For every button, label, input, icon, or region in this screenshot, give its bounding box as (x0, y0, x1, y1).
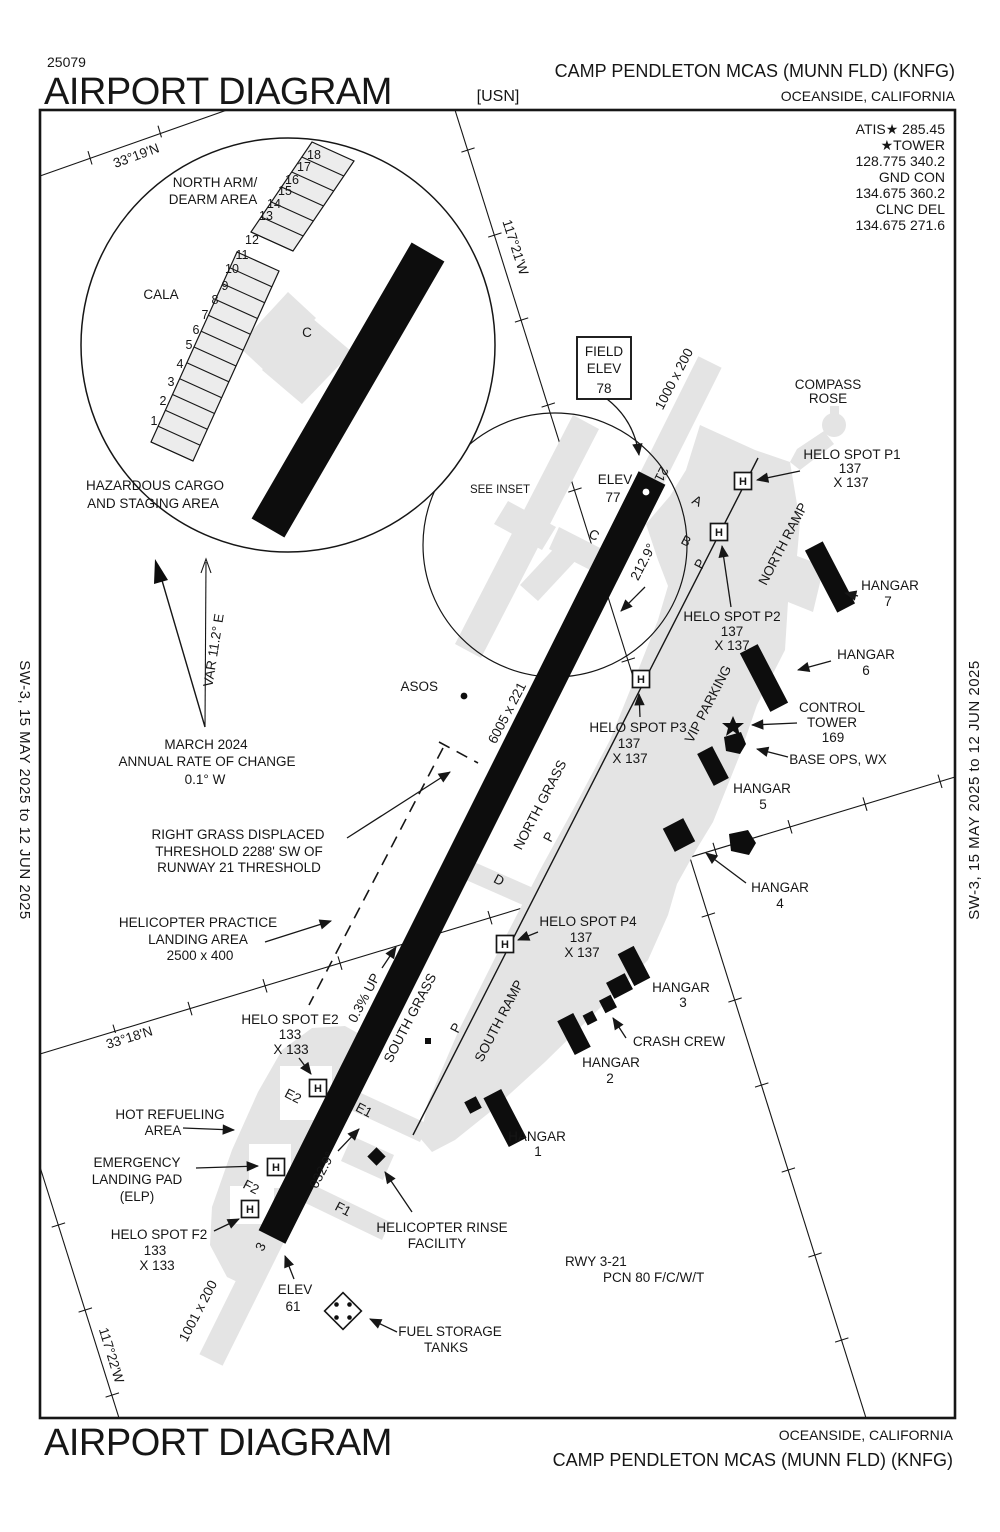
hot-refuel-leader (183, 1128, 234, 1130)
elp-label-3: (ELP) (120, 1189, 155, 1204)
helo-spot-p4-label: HELO SPOT P4 (539, 914, 637, 929)
svg-text:H: H (739, 476, 747, 488)
practice-area-note-3: 2500 x 400 (167, 948, 234, 963)
inset-spot-12: 12 (245, 233, 259, 247)
elev-77-label: ELEV (598, 472, 633, 487)
compass-rose-label-1: COMPASS (795, 377, 862, 392)
footer-airport-name: CAMP PENDLETON MCAS (MUNN FLD) (KNFG) (553, 1450, 953, 1470)
rinse-facility-label-1: HELICOPTER RINSE (376, 1220, 507, 1235)
inset-spot-14: 14 (267, 197, 281, 211)
displaced-note-1: RIGHT GRASS DISPLACED (151, 827, 324, 842)
helo-spot-e2-dim1: 133 (279, 1027, 302, 1042)
inset-spot-13: 13 (259, 209, 273, 223)
elev-61-label: ELEV (278, 1282, 313, 1297)
field-elev-line-2: ELEV (587, 361, 622, 376)
compass-rose-nub (830, 406, 839, 415)
compass-rose-label-2: ROSE (809, 391, 847, 406)
hot-refuel-label-1: HOT REFUELING (115, 1107, 224, 1122)
inset-cala-label: CALA (143, 287, 178, 302)
inset-spot-2: 2 (160, 394, 167, 408)
north-indicator: VAR 11.2° E MARCH 2024 ANNUAL RATE OF CH… (118, 559, 295, 787)
inset-spot-11: 11 (236, 248, 249, 262)
see-inset-label: SEE INSET (470, 484, 530, 496)
base-ops-leader (757, 749, 788, 757)
helo-spot-f2-dim2: X 133 (139, 1258, 174, 1273)
helo-spot-p2-dim1: 137 (721, 624, 744, 639)
hangar-6-number: 6 (862, 663, 870, 678)
rinse-facility-label-2: FACILITY (408, 1236, 467, 1251)
inset-spot-7: 7 (202, 308, 209, 322)
taxiway-c-label: C (586, 526, 602, 544)
comms-tower-freq: 128.775 340.2 (855, 153, 945, 169)
rinse-facility-leader (385, 1172, 412, 1212)
inset-spot-9: 9 (222, 279, 229, 293)
inset-spot-8: 8 (212, 293, 219, 307)
helo-spot-e2-dim2: X 133 (273, 1042, 308, 1057)
heading-212-arrow (621, 587, 645, 611)
helo-spot-p3-dim2: X 137 (612, 751, 647, 766)
field-elev-leader (607, 399, 639, 455)
helo-spot-f2-box: H (242, 1201, 259, 1218)
helo-spot-p1-dim1: 137 (839, 461, 862, 476)
displaced-note-3: RUNWAY 21 THRESHOLD (157, 860, 321, 875)
inset-hazardous-label-1: HAZARDOUS CARGO (86, 478, 224, 493)
control-tower-elev: 169 (822, 730, 845, 745)
hangar-7-label: HANGAR (861, 578, 919, 593)
svg-text:SW-3, 15 MAY 2025 to 12 JUN: SW-3, 15 MAY 2025 to 12 JUN 2025 (966, 660, 983, 919)
helo-spot-p4-box: H (497, 936, 514, 953)
inset-spot-3: 3 (168, 375, 175, 389)
hangar-3-number: 3 (679, 995, 687, 1010)
helo-spot-p2-box: H (711, 524, 728, 541)
inset-spot-4: 4 (177, 357, 184, 371)
true-north-line (205, 562, 206, 727)
inset-spot-16: 16 (285, 173, 299, 187)
inset-detail: NORTH ARM/ DEARM AREA CALA C HAZARDOUS C… (81, 138, 495, 552)
svg-text:H: H (272, 1162, 280, 1174)
airport-diagram-page: { "header": { "chart_number": "25079", "… (0, 0, 1000, 1532)
elp-label-1: EMERGENCY (93, 1155, 180, 1170)
hangar-4-number: 4 (776, 896, 784, 911)
asos-dot (461, 693, 468, 700)
crash-crew-leader (613, 1018, 626, 1038)
magnetic-north-arrowhead (154, 559, 168, 584)
hangar-6-label: HANGAR (837, 647, 895, 662)
footer: OCEANSIDE, CALIFORNIA AIRPORT DIAGRAM CA… (44, 1422, 954, 1470)
airport-city: OCEANSIDE, CALIFORNIA (781, 88, 956, 104)
rwy-info-line-1: RWY 3-21 (565, 1254, 627, 1269)
elev-61-leader (285, 1256, 294, 1279)
hangar-4-label: HANGAR (751, 880, 809, 895)
variation-date: MARCH 2024 (164, 737, 248, 752)
helo-spot-p4-dim1: 137 (570, 930, 593, 945)
building-east-of-hangar4 (729, 830, 756, 855)
inset-hazardous-label-2: AND STAGING AREA (87, 496, 219, 511)
inset-spot-1: 1 (151, 414, 158, 428)
hangar-4-leader (706, 853, 746, 883)
helo-spot-p3-dim1: 137 (618, 736, 641, 751)
helo-spot-p3-box: H (633, 671, 650, 688)
helo-spot-p4-dim2: X 137 (564, 945, 599, 960)
elev-61-value: 61 (285, 1299, 300, 1314)
elp-helo-box: H (268, 1159, 285, 1176)
fuel-storage-symbol (325, 1293, 362, 1330)
helo-spot-p2-dim2: X 137 (714, 638, 749, 653)
comms-gnd: GND CON (879, 169, 945, 185)
elev-77-value: 77 (605, 490, 620, 505)
svg-text:H: H (715, 527, 723, 539)
control-tower-label-2: TOWER (807, 715, 857, 730)
displaced-note-2: THRESHOLD 2288' SW OF (155, 844, 323, 859)
helo-spot-p3-label: HELO SPOT P3 (589, 720, 686, 735)
comms-atis: ATIS★ 285.45 (856, 121, 946, 137)
comms-tower: ★TOWER (881, 137, 945, 153)
hangar-1-label: HANGAR (508, 1129, 566, 1144)
fuel-storage-leader (370, 1319, 397, 1332)
inset-spot-17: 17 (297, 160, 311, 174)
hangar-5-number: 5 (759, 797, 767, 812)
control-tower-leader (752, 723, 797, 725)
helo-spot-f2-dim1: 133 (144, 1243, 167, 1258)
displaced-threshold-dash (439, 742, 478, 763)
right-margin-text: SW-3, 15 MAY 2025 to 12 JUN 2025 (966, 660, 983, 919)
chart-number: 25079 (47, 54, 86, 70)
svg-text:SW-3, 15 MAY 2025 to 12 JUN: SW-3, 15 MAY 2025 to 12 JUN 2025 (16, 660, 33, 919)
practice-area-note-2: LANDING AREA (148, 932, 248, 947)
comms-gnd-freq: 134.675 360.2 (855, 185, 945, 201)
hangar-6-leader (798, 661, 831, 670)
variation-rate-label: ANNUAL RATE OF CHANGE (118, 754, 295, 769)
hangar-5-label: HANGAR (733, 781, 791, 796)
hot-refuel-label-2: AREA (145, 1123, 182, 1138)
svg-text:33°18'N: 33°18'N (104, 1023, 154, 1051)
lat-label-3318: 33°18'N (94, 1020, 164, 1055)
compass-rose-pad (822, 413, 846, 437)
svg-text:33°19'N: 33°19'N (111, 140, 161, 170)
header: 25079 AIRPORT DIAGRAM [USN] CAMP PENDLET… (44, 54, 956, 113)
variation-label: VAR 11.2° E (200, 613, 226, 688)
page-title: AIRPORT DIAGRAM (44, 71, 392, 113)
helo-spot-e2-box: H (310, 1080, 327, 1097)
runway-21-threshold-dot (643, 489, 650, 496)
helo-spot-p1-dim2: X 137 (833, 475, 868, 490)
helo-spot-f2-label: HELO SPOT F2 (111, 1227, 208, 1242)
variation-rate-value: 0.1° W (185, 772, 226, 787)
comms-clnc-freq: 134.675 271.6 (855, 217, 945, 233)
elp-label-2: LANDING PAD (92, 1172, 183, 1187)
rwy-info-line-2: PCN 80 F/C/W/T (603, 1270, 704, 1285)
hangar-2-number: 2 (606, 1071, 614, 1086)
svg-text:H: H (501, 939, 509, 951)
helo-spot-p2-label: HELO SPOT P2 (683, 609, 780, 624)
comms-block: ATIS★ 285.45 ★TOWER 128.775 340.2 GND CO… (855, 121, 945, 233)
magnetic-north-line (161, 577, 205, 727)
svg-text:H: H (314, 1083, 322, 1095)
field-elev-value: 78 (596, 381, 611, 396)
inset-spot-10: 10 (225, 262, 239, 276)
inset-north-arm-label-2: DEARM AREA (169, 192, 258, 207)
inset-spot-6: 6 (193, 323, 200, 337)
hangar-2-label: HANGAR (582, 1055, 640, 1070)
inset-taxiway-c-label: C (302, 325, 312, 340)
hangar-1-number: 1 (534, 1144, 542, 1159)
helo-spot-p1-label: HELO SPOT P1 (803, 447, 900, 462)
svg-text:117°22'W: 117°22'W (96, 1326, 127, 1385)
inset-spot-18: 18 (307, 148, 321, 162)
control-tower-label-1: CONTROL (799, 700, 865, 715)
hangar-7-number: 7 (884, 594, 892, 609)
left-margin-text: SW-3, 15 MAY 2025 to 12 JUN 2025 (16, 660, 33, 919)
lon-label-11721: 117°21'W (497, 209, 535, 284)
org-label: [USN] (477, 88, 520, 105)
south-grass-marker (425, 1038, 431, 1044)
helo-spot-p1-box: H (735, 473, 752, 490)
practice-area-note-1: HELICOPTER PRACTICE (119, 915, 277, 930)
taxiway-p-label-mid: P (540, 829, 557, 844)
diagram-canvas: 25079 AIRPORT DIAGRAM [USN] CAMP PENDLET… (0, 0, 1000, 1532)
footer-city: OCEANSIDE, CALIFORNIA (779, 1427, 954, 1443)
asos-label: ASOS (400, 679, 438, 694)
svg-text:H: H (637, 674, 645, 686)
lon-line-11722 (40, 1167, 119, 1418)
hangar-3-label: HANGAR (652, 980, 710, 995)
inset-spot-5: 5 (186, 338, 193, 352)
helo-spot-e2-label: HELO SPOT E2 (241, 1012, 338, 1027)
crash-crew-label: CRASH CREW (633, 1034, 726, 1049)
base-ops-label: BASE OPS, WX (789, 752, 887, 767)
airport-name: CAMP PENDLETON MCAS (MUNN FLD) (KNFG) (555, 61, 955, 81)
fuel-storage-label-2: TANKS (424, 1340, 468, 1355)
displaced-note-leader (347, 772, 450, 838)
inset-north-arm-label-1: NORTH ARM/ (173, 175, 258, 190)
svg-text:H: H (246, 1204, 254, 1216)
footer-title: AIRPORT DIAGRAM (44, 1422, 392, 1464)
field-elev-line-1: FIELD (585, 344, 624, 359)
fuel-storage-label-1: FUEL STORAGE (398, 1324, 502, 1339)
comms-clnc: CLNC DEL (876, 201, 945, 217)
